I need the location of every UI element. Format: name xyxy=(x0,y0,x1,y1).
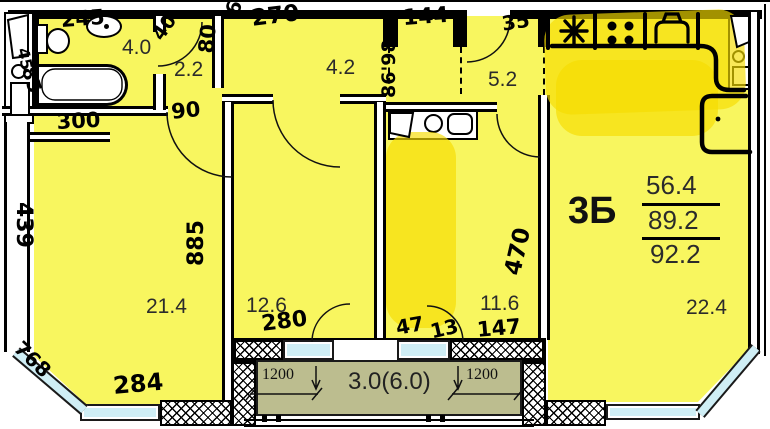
hw-dim-80: 80 xyxy=(194,23,221,55)
wall-corridor-stub-right xyxy=(453,10,467,47)
room-label-room-right: 11.6 xyxy=(480,292,519,316)
hw-dim-245: 245 xyxy=(60,5,105,32)
frame-right xyxy=(764,4,766,356)
highlight-marker-strip xyxy=(386,132,456,328)
room-label-entry-hall: 5.2 xyxy=(488,68,517,92)
hw-dim-144: 144 xyxy=(402,3,450,31)
hw-dim-284: 284 xyxy=(112,368,164,400)
balcony-window-right xyxy=(397,340,450,360)
hw-dim-300: 300 xyxy=(56,108,101,134)
room-label-kitchen-living: 22.4 xyxy=(686,296,727,320)
kitchen-sink-drainer-icon xyxy=(447,113,473,135)
balcony-area-label: 3.0(6.0) xyxy=(348,368,431,396)
balcony-railing-bottom xyxy=(244,425,534,427)
balcony-dim-left: 1200 xyxy=(262,366,294,384)
bay-window-left-bottom xyxy=(80,404,160,421)
bathtub-icon xyxy=(36,64,128,106)
balcony-pier-right xyxy=(522,362,546,426)
area-total: 89.2 xyxy=(648,205,699,236)
hw-dim-47: 47 xyxy=(394,311,426,339)
wall-room-right-east xyxy=(538,95,550,340)
area-living: 56.4 xyxy=(646,170,697,201)
opening-dashed-right xyxy=(460,47,462,94)
hw-dim-90: 90 xyxy=(170,97,202,124)
hw-dim-86-98: 86'98 xyxy=(378,39,400,98)
railing-post xyxy=(262,415,267,422)
wall-middle-right-rooms xyxy=(374,102,386,340)
apartment-type-label: 3Б xyxy=(568,190,616,233)
balcony-pier-left xyxy=(232,362,256,426)
room-label-hallway: 4.2 xyxy=(326,56,355,80)
railing-post xyxy=(276,415,281,422)
hatch-bottom-left xyxy=(160,400,232,426)
railing-post xyxy=(440,415,445,422)
balcony-window-left xyxy=(283,340,334,360)
hw-dim-885: 885 xyxy=(184,220,209,266)
highlight-marker-kitchen-2 xyxy=(556,60,718,136)
room-fill-right-lower xyxy=(548,340,752,402)
room-label-bathroom: 4.0 xyxy=(122,36,151,60)
hatch-pier-a xyxy=(234,340,283,360)
hatch-bottom-right xyxy=(546,400,606,426)
balcony-dim-right: 1200 xyxy=(466,366,498,384)
bay-window-right-bottom xyxy=(606,404,700,420)
hw-dim-35: 35 xyxy=(500,8,531,36)
toilet-bowl-icon xyxy=(46,28,70,54)
floor-plan: 4.0 2.2 4.2 5.2 12.6 11.6 21.4 22.4 3Б 5… xyxy=(0,0,770,429)
area-full: 92.2 xyxy=(650,239,701,270)
hatch-pier-b xyxy=(450,340,544,360)
kitchen-sink-bowl-icon xyxy=(424,114,443,133)
railing-post xyxy=(426,415,431,422)
hw-dim-147: 147 xyxy=(476,314,522,342)
balcony-railing-top xyxy=(244,419,534,421)
wall-room-left-top xyxy=(30,132,110,142)
room-label-room-left: 21.4 xyxy=(146,295,187,319)
room-label-wc-hall: 2.2 xyxy=(174,58,203,82)
hw-dim-439: 439 xyxy=(11,202,36,248)
wall-bath-wc-bottom xyxy=(153,74,166,110)
